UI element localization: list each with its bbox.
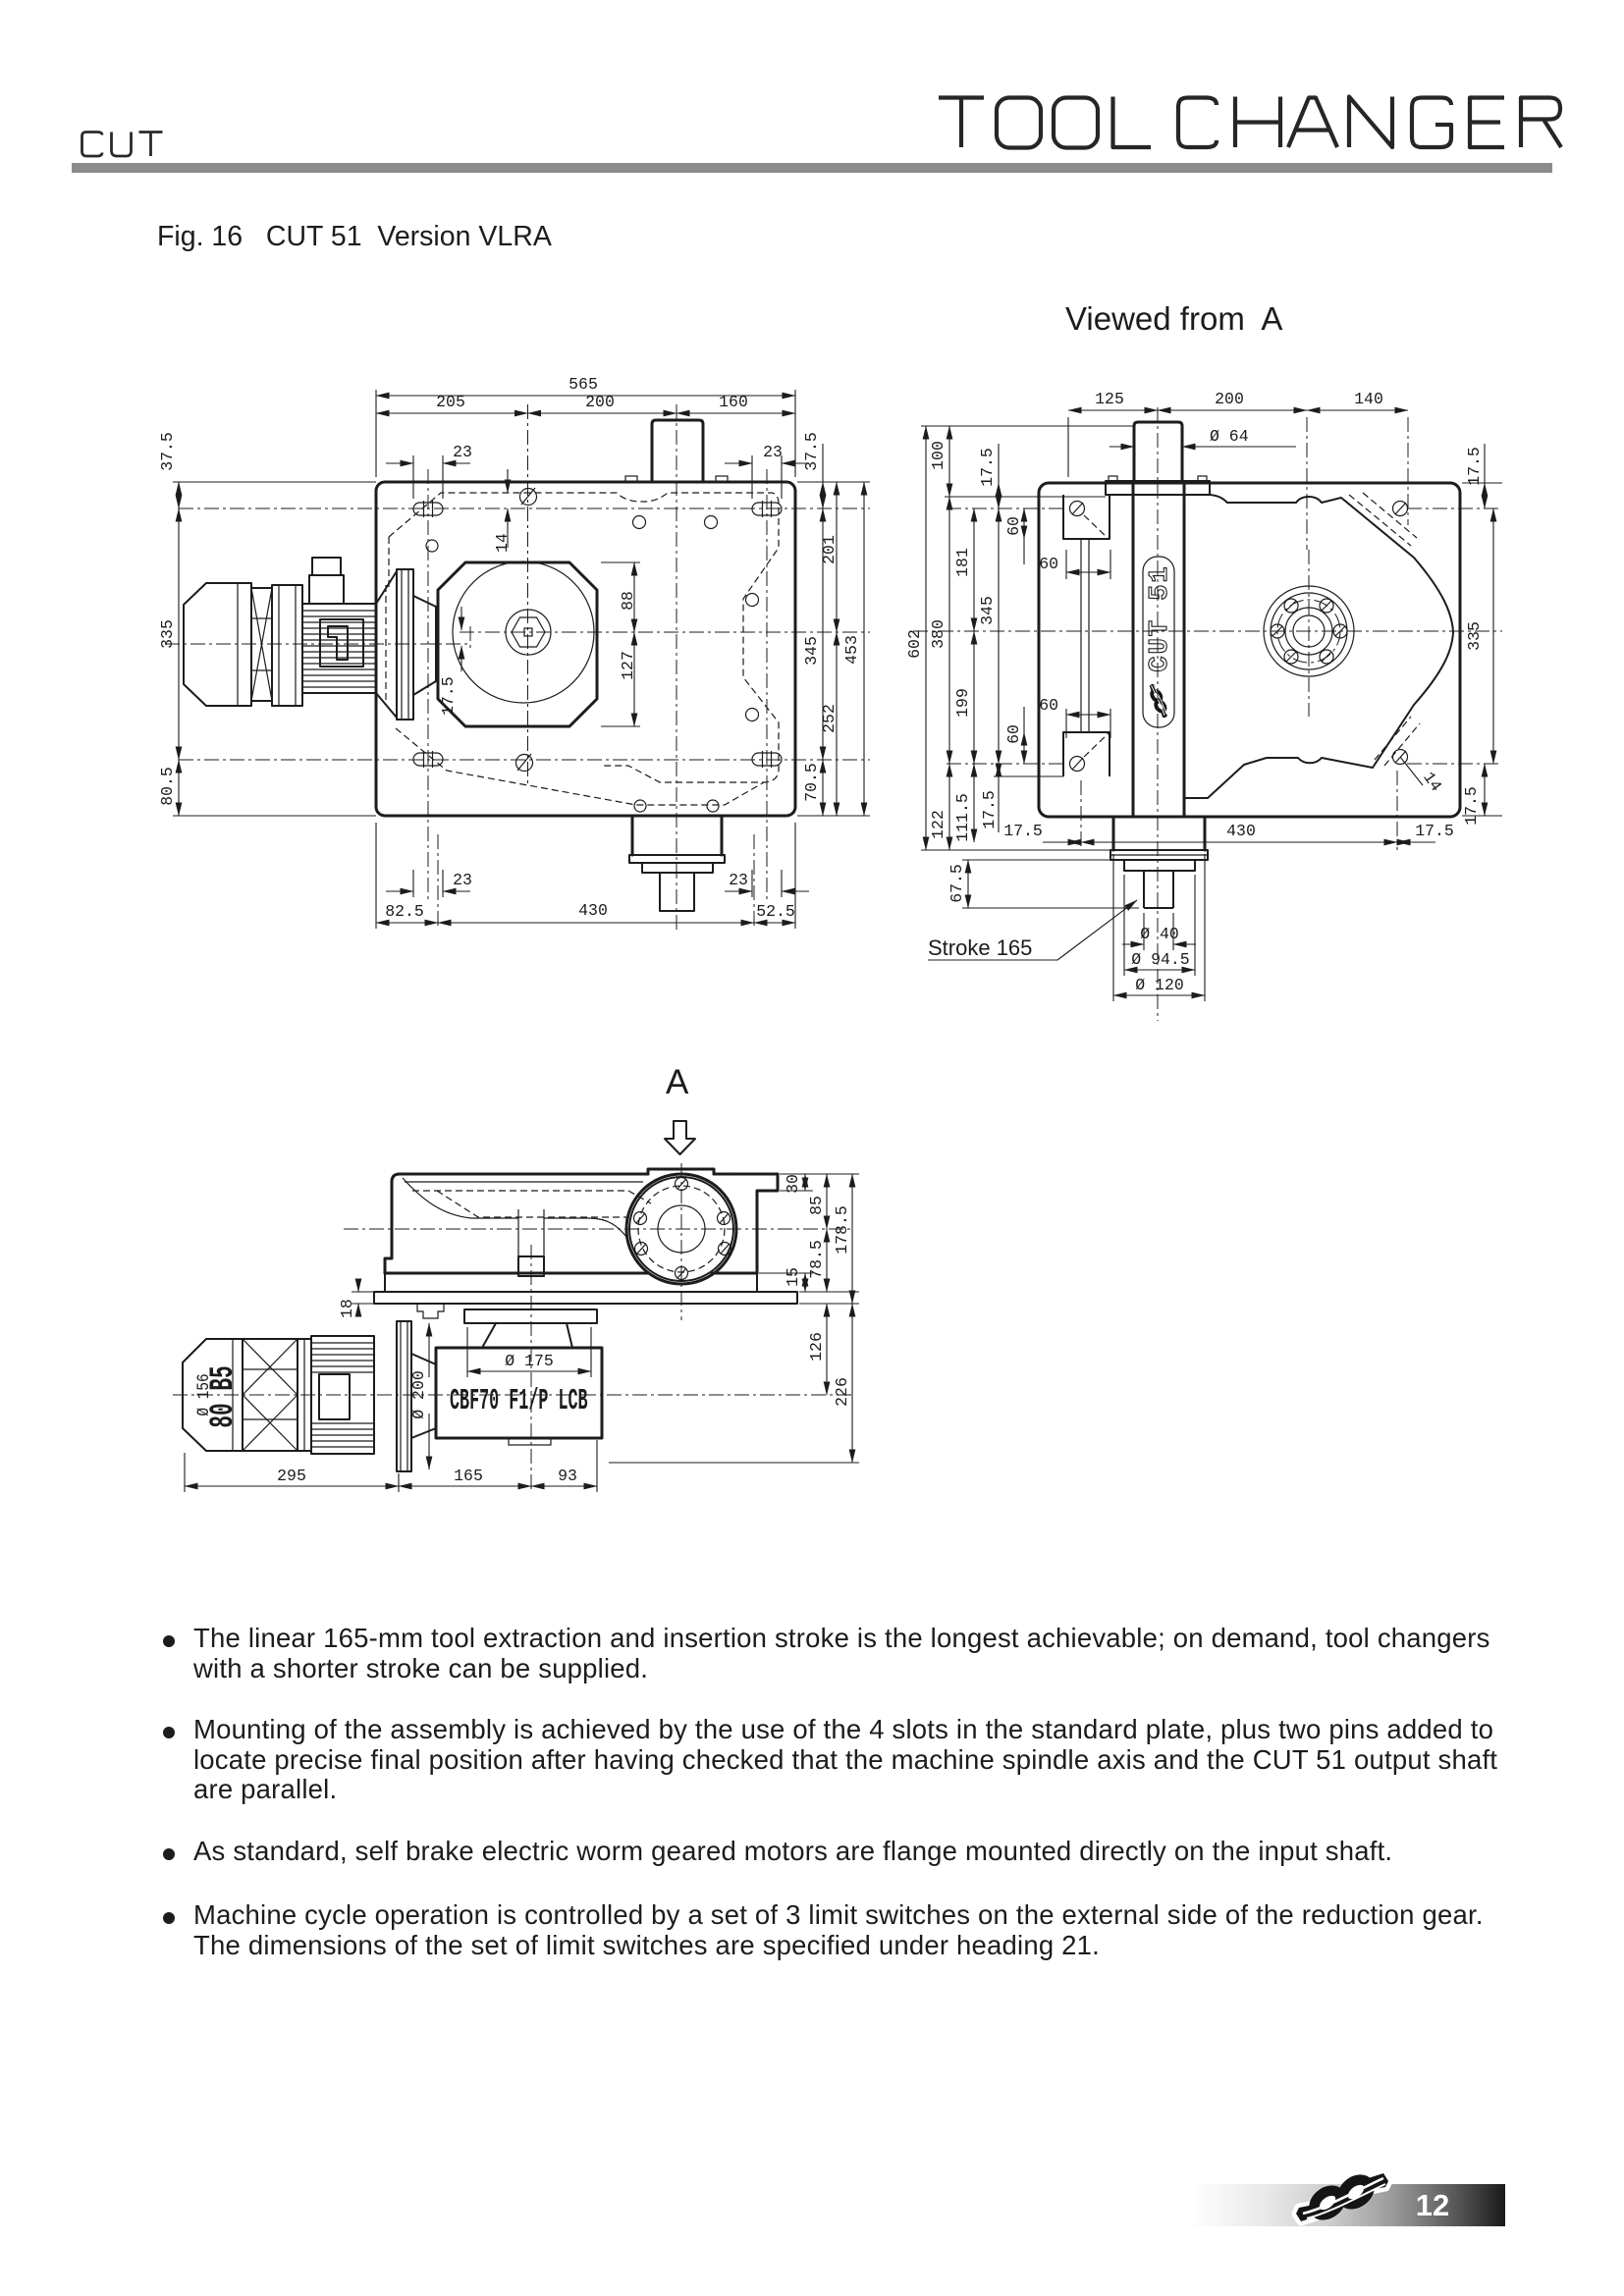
svg-text:23: 23 <box>729 871 748 889</box>
svg-text:430: 430 <box>578 901 608 920</box>
svg-text:CBF70 F1/P LCB: CBF70 F1/P LCB <box>450 1384 588 1418</box>
svg-text:60: 60 <box>1004 724 1023 744</box>
svg-text:122: 122 <box>929 810 947 839</box>
svg-text:178.5: 178.5 <box>833 1205 851 1255</box>
svg-text:Ø 120: Ø 120 <box>1135 976 1184 994</box>
svg-text:23: 23 <box>453 443 472 461</box>
svg-text:Ø 40: Ø 40 <box>1140 925 1179 943</box>
svg-text:70.5: 70.5 <box>802 763 821 802</box>
svg-text:200: 200 <box>1215 390 1244 408</box>
svg-text:52.5: 52.5 <box>756 902 795 921</box>
svg-text:226: 226 <box>833 1377 851 1407</box>
svg-text:380: 380 <box>929 619 947 649</box>
svg-text:23: 23 <box>763 443 783 461</box>
svg-text:17.5: 17.5 <box>439 676 458 716</box>
svg-text:345: 345 <box>802 636 821 666</box>
svg-text:Stroke 165: Stroke 165 <box>928 935 1032 960</box>
svg-text:295: 295 <box>277 1467 306 1485</box>
svg-text:82.5: 82.5 <box>385 902 424 921</box>
svg-text:Ø 94.5: Ø 94.5 <box>1131 950 1189 969</box>
svg-text:111.5: 111.5 <box>953 793 972 842</box>
svg-text:88: 88 <box>619 591 637 611</box>
svg-text:Ø 64: Ø 64 <box>1210 427 1249 446</box>
svg-text:17.5: 17.5 <box>980 790 999 829</box>
svg-text:200: 200 <box>585 393 615 411</box>
svg-text:12: 12 <box>1416 2188 1449 2222</box>
svg-text:80.5: 80.5 <box>158 767 177 806</box>
svg-text:160: 160 <box>719 393 748 411</box>
svg-text:37.5: 37.5 <box>802 432 821 471</box>
svg-text:345: 345 <box>978 596 997 625</box>
svg-text:80 B5: 80 B5 <box>204 1365 242 1427</box>
svg-text:67.5: 67.5 <box>947 864 966 903</box>
svg-text:165: 165 <box>454 1467 483 1485</box>
svg-text:252: 252 <box>820 704 839 733</box>
svg-text:Ø 175: Ø 175 <box>505 1352 554 1370</box>
svg-text:126: 126 <box>807 1332 826 1362</box>
svg-text:17.5: 17.5 <box>978 448 997 487</box>
svg-text:140: 140 <box>1354 390 1383 408</box>
svg-text:430: 430 <box>1226 822 1256 840</box>
svg-text:453: 453 <box>842 635 861 665</box>
svg-text:93: 93 <box>558 1467 577 1485</box>
svg-text:335: 335 <box>158 619 177 649</box>
svg-text:15: 15 <box>784 1267 802 1287</box>
svg-text:CUT 51: CUT 51 <box>1146 564 1175 671</box>
svg-text:30: 30 <box>784 1174 802 1194</box>
svg-text:602: 602 <box>905 629 924 659</box>
svg-text:A: A <box>666 1063 689 1101</box>
svg-text:199: 199 <box>953 688 972 718</box>
svg-text:205: 205 <box>436 393 465 411</box>
svg-text:14: 14 <box>1419 769 1445 795</box>
svg-text:17.5: 17.5 <box>1465 447 1484 486</box>
svg-text:18: 18 <box>338 1299 356 1318</box>
svg-text:17.5: 17.5 <box>1415 822 1454 840</box>
svg-text:181: 181 <box>953 548 972 577</box>
svg-text:14: 14 <box>493 533 512 553</box>
svg-text:127: 127 <box>619 651 637 680</box>
svg-text:37.5: 37.5 <box>158 432 177 471</box>
svg-text:125: 125 <box>1095 390 1124 408</box>
svg-text:565: 565 <box>568 375 598 394</box>
svg-text:201: 201 <box>820 535 839 564</box>
svg-text:78.5: 78.5 <box>807 1240 826 1279</box>
svg-text:60: 60 <box>1039 696 1058 715</box>
svg-text:60: 60 <box>1004 516 1023 536</box>
svg-text:335: 335 <box>1465 621 1484 651</box>
svg-text:17.5: 17.5 <box>1003 822 1043 840</box>
svg-text:23: 23 <box>453 871 472 889</box>
svg-text:60: 60 <box>1039 555 1058 573</box>
svg-text:100: 100 <box>929 441 947 470</box>
svg-text:85: 85 <box>807 1196 826 1215</box>
svg-text:17.5: 17.5 <box>1462 786 1481 826</box>
